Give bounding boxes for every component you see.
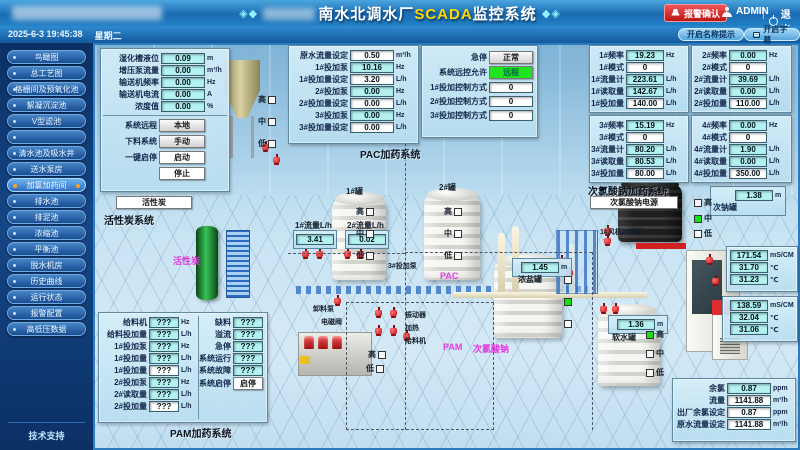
sidebar-item-history[interactable]: 历史曲线 bbox=[7, 274, 86, 288]
level-indicator bbox=[694, 230, 702, 238]
sidebar-label: 脱水机房 bbox=[31, 260, 63, 271]
pam-level-high: 高 bbox=[368, 349, 386, 360]
field-unit: ppm bbox=[773, 385, 791, 392]
field-unit: ℃ bbox=[770, 264, 794, 272]
valve-icon bbox=[302, 251, 309, 257]
field-label: 输送机电流 bbox=[119, 89, 159, 100]
brine-value: 1.45 bbox=[521, 262, 559, 273]
tank1-level-low: 低 bbox=[356, 250, 374, 261]
field-unit: L/h bbox=[666, 100, 684, 107]
field-row: 31.70℃ bbox=[730, 262, 794, 273]
tank2-level-high: 高 bbox=[444, 206, 462, 217]
naclo-pump3-panel: 3#频率15.19Hz 3#模式0 3#流量计80.20L/h 3#读取量80.… bbox=[589, 115, 689, 183]
setpoint-value[interactable]: 110.00 bbox=[729, 98, 767, 109]
sidebar-item-birdview[interactable]: 鸟瞰图 bbox=[7, 50, 86, 64]
field-row: 原水流量设定0.50m³/h bbox=[293, 50, 414, 61]
field-unit: mS/CM bbox=[770, 302, 794, 309]
toggle-subtitle-button[interactable]: 开启字幕 bbox=[744, 28, 800, 41]
naclo-tank-readout: 1.38m 次钠罐 bbox=[710, 186, 786, 216]
sidebar-item-blank[interactable] bbox=[7, 130, 86, 144]
field-row: 3#流量计80.20L/h bbox=[594, 144, 684, 155]
valve-icon bbox=[316, 251, 323, 257]
naclo-system-title: 次氯酸钠加药系统 bbox=[588, 183, 668, 198]
field-label: 4#流量计 bbox=[694, 144, 727, 155]
brine-level-mid-indicator bbox=[564, 298, 572, 306]
field-row: 3.41 bbox=[296, 234, 334, 245]
field-row: 4#读取量0.00L/h bbox=[696, 156, 787, 167]
field-label: 2#投加量 bbox=[114, 401, 147, 412]
field-label: 原水流量设定 bbox=[677, 419, 725, 430]
level-indicator bbox=[268, 140, 276, 148]
field-label: 1#频率 bbox=[599, 50, 624, 61]
field-label: 3#投加控制方式 bbox=[430, 110, 487, 121]
alarm-confirm-label: 报警确认 bbox=[684, 7, 720, 20]
field-unit: L/h bbox=[769, 100, 787, 107]
field-value: 39.69 bbox=[729, 74, 767, 85]
sidebar-item-clearwell[interactable]: 清水池及吸水井 bbox=[7, 146, 86, 160]
field-label: 原水流量设定 bbox=[300, 50, 348, 61]
field-row: 停止 bbox=[105, 167, 225, 180]
setpoint-value[interactable]: 350.00 bbox=[729, 168, 767, 179]
field-label: 2#投加量 bbox=[694, 98, 727, 109]
tank2-level-mid: 中 bbox=[444, 228, 462, 239]
hopper-leg bbox=[251, 116, 254, 158]
title-deco-right-icon: ◆◈ bbox=[542, 8, 561, 20]
system-remote-button[interactable]: 本地 bbox=[159, 119, 205, 132]
setpoint-value[interactable]: 0.50 bbox=[350, 50, 394, 61]
level-label: 低 bbox=[656, 367, 664, 378]
sidebar-label: 清水池及吸水井 bbox=[19, 148, 75, 159]
setpoint-value[interactable]: 0 bbox=[626, 62, 664, 73]
bullet-icon bbox=[13, 56, 16, 59]
pam-dosing-panel: 给料机???Hz 给料投加量???L/h 1#投加泵???Hz 1#投加量???… bbox=[98, 312, 268, 423]
field-unit: Hz bbox=[181, 319, 195, 326]
field-unit: L/h bbox=[396, 76, 414, 83]
soft-tank-level-high: 高 bbox=[646, 329, 664, 340]
valve-icon bbox=[600, 306, 607, 312]
field-row: 下料系统手动 bbox=[105, 135, 225, 148]
sidebar-item-runstatus[interactable]: 运行状态 bbox=[7, 290, 86, 304]
field-value: 1.90 bbox=[729, 144, 767, 155]
field-label: 系统运行 bbox=[199, 353, 231, 364]
level-indicator bbox=[366, 208, 374, 216]
setpoint-value[interactable]: 1141.88 bbox=[727, 419, 771, 430]
valve-icon bbox=[344, 251, 351, 257]
level-label: 中 bbox=[444, 228, 452, 239]
field-row: 溢流??? bbox=[202, 329, 263, 340]
valve-icon bbox=[712, 278, 719, 284]
field-unit: L/h bbox=[666, 158, 684, 165]
sidebar-item-dewatering[interactable]: 脱水机房 bbox=[7, 258, 86, 272]
field-unit: L/h bbox=[769, 170, 787, 177]
field-row: 32.04℃ bbox=[726, 312, 794, 323]
sidebar-label: 报警配置 bbox=[31, 308, 63, 319]
field-unit: L/h bbox=[181, 367, 195, 374]
bullet-icon bbox=[13, 136, 16, 139]
toggle-subtitle-label: 开启字幕 bbox=[763, 24, 791, 46]
field-unit: A bbox=[207, 91, 225, 98]
setpoint-value[interactable]: 140.00 bbox=[626, 98, 664, 109]
field-label: 1#投加量 bbox=[114, 353, 147, 364]
naclo-area-label: 次氯酸钠 bbox=[473, 342, 509, 355]
sidebar-item-balance[interactable]: 平衡池 bbox=[7, 242, 86, 256]
hopper-level-high: 高 bbox=[258, 94, 276, 105]
field-label: 浓度值 bbox=[135, 101, 159, 112]
field-label: 一键启停 bbox=[125, 152, 157, 163]
field-row: 1#投加量???L/h bbox=[103, 365, 195, 376]
field-label: 出厂余氯设定 bbox=[677, 407, 725, 418]
pipe bbox=[452, 292, 648, 298]
setpoint-value[interactable]: 0.87 bbox=[727, 407, 771, 418]
pipe bbox=[498, 233, 505, 295]
field-value: ??? bbox=[149, 389, 179, 400]
carbon-button[interactable]: 活性炭 bbox=[116, 196, 192, 209]
fans-label: 1#风机2#风机 bbox=[600, 227, 644, 237]
setpoint-value[interactable]: 0 bbox=[729, 62, 767, 73]
field-row: 3#投加量80.00L/h bbox=[594, 168, 684, 179]
level-indicator-on bbox=[646, 331, 654, 339]
field-row: 4#模式0 bbox=[696, 132, 787, 143]
naclo-pump4-panel: 4#频率0.00Hz 4#模式0 4#流量计1.90L/h 4#读取量0.00L… bbox=[691, 115, 792, 183]
setpoint-value[interactable]: 0.00 bbox=[350, 122, 394, 133]
sidebar-item-drainage[interactable]: 排水池 bbox=[7, 194, 86, 208]
outlet-quality-panel: 余氯0.87ppm 流量1141.88m³/h 出厂余氯设定0.87ppm 原水… bbox=[672, 378, 796, 442]
carbon-area-label: 活性炭 bbox=[173, 254, 200, 267]
field-unit: ℃ bbox=[770, 314, 794, 322]
field-label: 3#投加量设定 bbox=[299, 122, 348, 133]
field-row: 输送机频率0.00Hz bbox=[105, 77, 225, 88]
sidebar-item-vfilter[interactable]: V型滤池 bbox=[7, 114, 86, 128]
sidebar-label: 浓缩池 bbox=[35, 228, 59, 239]
field-label: 缺料 bbox=[215, 317, 231, 328]
sidebar-label: 送水泵房 bbox=[31, 164, 63, 175]
level-indicator bbox=[376, 365, 384, 373]
field-row: 3#投加控制方式0 bbox=[426, 110, 533, 121]
field-unit: m³/h bbox=[207, 67, 225, 74]
field-label: 4#模式 bbox=[702, 132, 727, 143]
title-suffix: 监控系统 bbox=[473, 6, 537, 23]
setpoint-value[interactable]: 0 bbox=[489, 96, 533, 107]
field-value: 171.54 bbox=[730, 250, 768, 261]
field-row: 2#投加量设定0.00L/h bbox=[293, 98, 414, 109]
sidebar-item-screen-preox[interactable]: 格栅间及预氧化池 bbox=[7, 82, 86, 96]
hopper-level-low: 低 bbox=[258, 138, 276, 149]
field-value: ??? bbox=[233, 329, 263, 340]
level-indicator-on bbox=[694, 215, 702, 223]
sidebar-nav: 鸟瞰图 总工艺图 格栅间及预氧化池 絮凝沉淀池 V型滤池 清水池及吸水井 送水泵… bbox=[0, 43, 95, 450]
naclo-tank-name: 次钠罐 bbox=[713, 202, 783, 213]
setpoint-value[interactable]: 0 bbox=[489, 82, 533, 93]
bullet-icon bbox=[13, 216, 16, 219]
level-indicator bbox=[268, 96, 276, 104]
field-row: 1#模式0 bbox=[594, 62, 684, 73]
soft-tank-level-mid: 中 bbox=[646, 348, 664, 359]
field-row: 1#投加量140.00L/h bbox=[594, 98, 684, 109]
sidebar-item-hvlv[interactable]: 高低压数据 bbox=[7, 322, 86, 336]
pac-dosing-panel: 原水流量设定0.50m³/h 1#投加泵10.16Hz 1#投加量设定3.20L… bbox=[288, 45, 419, 144]
flow2-label: 2#流量L/h bbox=[347, 220, 384, 231]
field-label: 溢流 bbox=[215, 329, 231, 340]
conductivity-panel-2: 138.59mS/CM 32.04℃ 31.06℃ bbox=[722, 296, 798, 342]
level-label: 高 bbox=[356, 206, 364, 217]
field-row: 31.23℃ bbox=[730, 274, 794, 285]
field-row: 急停正常 bbox=[426, 51, 533, 64]
pam-system-title: PAM加药系统 bbox=[170, 425, 231, 440]
level-indicator bbox=[454, 230, 462, 238]
field-row: 171.54mS/CM bbox=[730, 250, 794, 261]
field-row: 2#频率0.00Hz bbox=[696, 50, 787, 61]
setpoint-value[interactable]: 0 bbox=[489, 110, 533, 121]
field-label: 3#流量计 bbox=[591, 144, 624, 155]
field-label: 3#频率 bbox=[599, 120, 624, 131]
bullet-icon bbox=[13, 120, 16, 123]
field-value: 31.23 bbox=[730, 274, 768, 285]
tank1-label: 1#罐 bbox=[346, 186, 363, 197]
estop-status-button[interactable]: 正常 bbox=[489, 51, 533, 64]
field-label: 1#投加量设定 bbox=[299, 74, 348, 85]
setpoint-value[interactable]: 80.00 bbox=[626, 168, 664, 179]
alarm-confirm-button[interactable]: 报警确认 bbox=[664, 4, 727, 22]
setpoint-value[interactable]: ??? bbox=[149, 365, 179, 376]
field-row: 余氯0.87ppm bbox=[677, 383, 791, 394]
field-label: 系统远控允许 bbox=[439, 67, 487, 78]
sidebar-label: 鸟瞰图 bbox=[35, 52, 59, 63]
field-label: 给料投加量 bbox=[107, 329, 147, 340]
field-label: 4#投加量 bbox=[694, 168, 727, 179]
field-row: 1#流量计223.61L/h bbox=[594, 74, 684, 85]
field-unit: m³/h bbox=[773, 397, 791, 404]
zone-divider bbox=[288, 253, 405, 254]
field-label: 1#投加量 bbox=[591, 98, 624, 109]
field-value: 19.23 bbox=[626, 50, 664, 61]
field-unit: ℃ bbox=[770, 276, 794, 284]
field-row: 缺料??? bbox=[202, 317, 263, 328]
field-label: 增压泵流量 bbox=[119, 65, 159, 76]
field-value: ??? bbox=[233, 353, 263, 364]
sidebar-label: 加氯加药间 bbox=[27, 180, 67, 191]
brine-unit: m bbox=[561, 264, 569, 271]
naclo-tank-level-mid: 中 bbox=[694, 213, 712, 224]
field-unit: L/h bbox=[666, 88, 684, 95]
plant-name-redacted bbox=[263, 8, 315, 20]
field-label: 4#读取量 bbox=[694, 156, 727, 167]
level-label: 低 bbox=[444, 250, 452, 261]
user-icon bbox=[722, 7, 732, 17]
user-menu[interactable]: ADMIN bbox=[722, 6, 769, 17]
valve-icon bbox=[334, 298, 341, 304]
field-unit: L/h bbox=[181, 403, 195, 410]
scada-app: ◈◆ 南水北调水厂SCADA监控系统 ◆◈ 报警确认 ADMIN 退出 2025… bbox=[0, 0, 800, 450]
header-bar: ◈◆ 南水北调水厂SCADA监控系统 ◆◈ 报警确认 ADMIN 退出 bbox=[0, 0, 800, 26]
sidebar-label: 排水池 bbox=[35, 196, 59, 207]
field-unit: m³/h bbox=[396, 52, 414, 59]
field-unit: L/h bbox=[666, 170, 684, 177]
field-value: ??? bbox=[149, 341, 179, 352]
sidebar-item-thickener[interactable]: 浓缩池 bbox=[7, 226, 86, 240]
pac-area-label: PAC bbox=[440, 271, 458, 281]
field-label: 余氯 bbox=[709, 383, 725, 394]
field-row: 系统运行??? bbox=[202, 353, 263, 364]
soft-unit: m bbox=[657, 321, 665, 328]
level-label: 低 bbox=[258, 138, 266, 149]
zone-divider bbox=[592, 252, 593, 430]
field-value: 0.87 bbox=[727, 383, 771, 394]
field-row: 1#投加量设定3.20L/h bbox=[293, 74, 414, 85]
setpoint-value[interactable]: 0.00 bbox=[350, 98, 394, 109]
field-label: 1#投加泵 bbox=[114, 341, 147, 352]
field-value: 223.61 bbox=[626, 74, 664, 85]
field-value: 0.00 bbox=[729, 156, 767, 167]
field-row: 1#投加控制方式0 bbox=[426, 82, 533, 93]
field-row: 2#投加控制方式0 bbox=[426, 96, 533, 107]
sidebar-label: 平衡池 bbox=[35, 244, 59, 255]
level-indicator bbox=[454, 252, 462, 260]
title-scada: SCADA bbox=[414, 6, 472, 23]
setpoint-value[interactable]: 3.20 bbox=[350, 74, 394, 85]
carbon-feeder-device bbox=[226, 230, 250, 298]
divider bbox=[103, 115, 227, 116]
naclo-tank-level-low: 低 bbox=[694, 228, 712, 239]
feed-mode-button[interactable]: 手动 bbox=[159, 135, 205, 148]
field-value: 0.00 bbox=[161, 77, 205, 88]
field-label: 湿化槽液位 bbox=[119, 53, 159, 64]
field-label: 下料系统 bbox=[125, 136, 157, 147]
field-unit: Hz bbox=[666, 52, 684, 59]
field-label: 3#模式 bbox=[599, 132, 624, 143]
field-row: 给料机???Hz bbox=[103, 317, 195, 328]
setpoint-value[interactable]: 0 bbox=[729, 132, 767, 143]
pump-icon bbox=[304, 336, 314, 349]
field-value: ??? bbox=[149, 329, 179, 340]
field-label: 2#投加控制方式 bbox=[430, 96, 487, 107]
toggle-name-tips-button[interactable]: 开启名称提示 bbox=[678, 28, 744, 41]
naclo-tank-base bbox=[636, 243, 686, 249]
brine-tank-label: 浓盐罐 bbox=[518, 274, 542, 285]
sidebar-label: 历史曲线 bbox=[31, 276, 63, 287]
field-value: 0.00 bbox=[161, 65, 205, 76]
setpoint-value[interactable]: 0 bbox=[626, 132, 664, 143]
level-label: 高 bbox=[258, 94, 266, 105]
field-row: 1#投加泵???Hz bbox=[103, 341, 195, 352]
sidebar-item-pumphouse[interactable]: 送水泵房 bbox=[7, 162, 86, 176]
field-unit: ppm bbox=[773, 409, 791, 416]
field-row: 1#读取量142.67L/h bbox=[594, 86, 684, 97]
field-value: ??? bbox=[149, 317, 179, 328]
sidebar-label: 运行状态 bbox=[31, 292, 63, 303]
pam-left-column: 给料机???Hz 给料投加量???L/h 1#投加泵???Hz 1#投加量???… bbox=[103, 316, 199, 419]
pump3-label: 3#投加泵 bbox=[388, 261, 417, 271]
field-row: 1#投加泵10.16Hz bbox=[293, 62, 414, 73]
field-value: 142.67 bbox=[626, 86, 664, 97]
field-row: 31.06℃ bbox=[726, 324, 794, 335]
valve-icon bbox=[604, 238, 611, 244]
field-row: 流量1141.88m³/h bbox=[677, 395, 791, 406]
sidebar-item-alarmconfig[interactable]: 报警配置 bbox=[7, 306, 86, 320]
valve-icon bbox=[612, 306, 619, 312]
field-unit: Hz bbox=[181, 343, 195, 350]
naclo-pump2-panel: 2#频率0.00Hz 2#模式0 2#流量计39.69L/h 2#读取量0.00… bbox=[691, 45, 792, 113]
field-unit: L/h bbox=[666, 76, 684, 83]
field-row: 2#投加泵???Hz bbox=[103, 377, 195, 388]
field-value: 80.53 bbox=[626, 156, 664, 167]
field-label: 3#投加量 bbox=[591, 168, 624, 179]
feeder-label: 给料机 bbox=[405, 336, 426, 346]
field-label: 系统启停 bbox=[199, 378, 231, 389]
field-unit: ℃ bbox=[770, 326, 794, 334]
field-row: 4#流量计1.90L/h bbox=[696, 144, 787, 155]
pam-area-label: PAM bbox=[443, 342, 462, 352]
pam-right-column: 缺料??? 溢流??? 急停??? 系统运行??? 系统故障??? 系统启停启停 bbox=[199, 316, 263, 419]
field-label: 1#投加量 bbox=[114, 365, 147, 376]
field-label: 急停 bbox=[215, 341, 231, 352]
field-value: 0.00 bbox=[350, 86, 394, 97]
tech-support-link[interactable]: 技术支持 bbox=[8, 422, 85, 442]
bullet-icon bbox=[13, 184, 17, 188]
sidebar-label: 排泥池 bbox=[35, 212, 59, 223]
level-label: 低 bbox=[356, 250, 364, 261]
field-label: 急停 bbox=[471, 52, 487, 63]
flow1-value: 3.41 bbox=[296, 234, 334, 245]
pump-icon bbox=[318, 336, 328, 349]
valve-icon bbox=[706, 257, 713, 263]
brine-level-low-indicator bbox=[564, 320, 572, 328]
brine-level-high-indicator bbox=[564, 276, 572, 284]
bullet-icon bbox=[13, 200, 16, 203]
setpoint-value[interactable]: ??? bbox=[149, 401, 179, 412]
field-row: 3#读取量80.53L/h bbox=[594, 156, 684, 167]
bullet-icon bbox=[13, 152, 16, 155]
field-label: 1#投加泵 bbox=[315, 62, 348, 73]
field-unit: Hz bbox=[769, 52, 787, 59]
field-unit: Hz bbox=[769, 122, 787, 129]
vibrator-label: 振动器 bbox=[405, 310, 426, 320]
valve-icon bbox=[273, 157, 280, 163]
sidebar-item-sludge[interactable]: 排泥池 bbox=[7, 210, 86, 224]
sidebar-item-dosing-room-active[interactable]: 加氯加药间 bbox=[7, 178, 86, 192]
level-indicator bbox=[366, 252, 374, 260]
field-label: 1#投加控制方式 bbox=[430, 82, 487, 93]
start-button[interactable]: 启动 bbox=[159, 151, 205, 164]
bullet-icon bbox=[13, 232, 16, 235]
field-unit: L/h bbox=[396, 124, 414, 131]
field-value: 32.04 bbox=[730, 312, 768, 323]
field-row: 2#流量计39.69L/h bbox=[696, 74, 787, 85]
stop-button[interactable]: 停止 bbox=[159, 167, 205, 180]
unload-pump-label: 卸料泵 bbox=[313, 304, 334, 314]
level-label: 低 bbox=[704, 228, 712, 239]
field-label: 流量 bbox=[709, 395, 725, 406]
sidebar-label: 高低压数据 bbox=[27, 324, 67, 335]
sidebar-item-process[interactable]: 总工艺图 bbox=[7, 66, 86, 80]
field-row: 2#投加泵0.00Hz bbox=[293, 86, 414, 97]
field-unit: L/h bbox=[769, 158, 787, 165]
remote-enable-button[interactable]: 远程 bbox=[489, 66, 533, 79]
level-indicator bbox=[646, 369, 654, 377]
bullet-icon bbox=[13, 72, 16, 75]
field-label: 1#模式 bbox=[599, 62, 624, 73]
field-unit: L/h bbox=[181, 331, 195, 338]
bullet-icon bbox=[13, 248, 16, 251]
field-label: 2#投加泵 bbox=[114, 377, 147, 388]
junction-box bbox=[300, 356, 310, 364]
field-value: 15.19 bbox=[626, 120, 664, 131]
sidebar-item-flocculation[interactable]: 絮凝沉淀池 bbox=[7, 98, 86, 112]
field-unit: m³/h bbox=[773, 421, 791, 428]
field-value: 31.06 bbox=[730, 324, 768, 335]
pam-startstop-button[interactable]: 启停 bbox=[233, 377, 263, 390]
field-row: 2#投加量???L/h bbox=[103, 401, 195, 412]
field-unit: Hz bbox=[396, 112, 414, 119]
